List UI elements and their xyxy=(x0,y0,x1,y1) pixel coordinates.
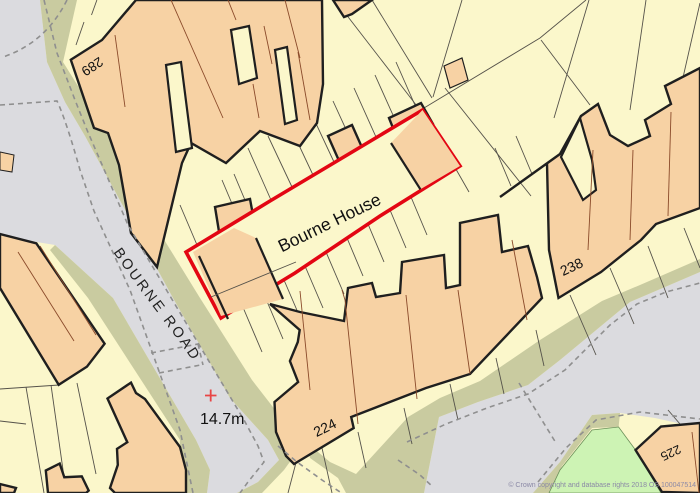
svg-text:© Crown copyright and database: © Crown copyright and database rights 20… xyxy=(508,481,696,489)
svg-text:14.7m: 14.7m xyxy=(200,411,244,428)
